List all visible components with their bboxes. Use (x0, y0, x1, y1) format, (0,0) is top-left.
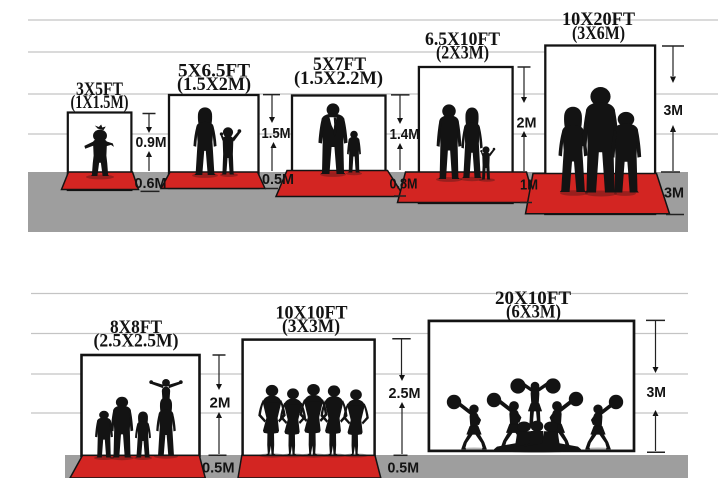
svg-text:(3X3M): (3X3M) (282, 316, 340, 337)
svg-text:3M: 3M (664, 103, 684, 119)
svg-text:(2.5X2.5M): (2.5X2.5M) (94, 331, 179, 352)
svg-text:(2X3M): (2X3M) (436, 43, 489, 64)
svg-text:1.5M: 1.5M (262, 126, 291, 142)
svg-text:(1.5X2.2M): (1.5X2.2M) (294, 68, 383, 89)
svg-text:2M: 2M (517, 116, 537, 132)
svg-text:(1.5X2M): (1.5X2M) (177, 74, 251, 95)
svg-text:0.8M: 0.8M (390, 177, 418, 193)
svg-text:1.4M: 1.4M (390, 127, 420, 143)
svg-text:2M: 2M (210, 396, 231, 412)
svg-text:1M: 1M (520, 178, 538, 194)
svg-text:0.5M: 0.5M (202, 461, 235, 477)
svg-text:3M: 3M (647, 385, 667, 401)
svg-text:2.5M: 2.5M (389, 386, 421, 402)
svg-text:(1X1.5M): (1X1.5M) (71, 92, 129, 113)
svg-text:0.5M: 0.5M (388, 461, 420, 477)
svg-text:0.6M: 0.6M (135, 176, 167, 192)
svg-text:(3X6M): (3X6M) (572, 23, 625, 44)
svg-text:0.9M: 0.9M (136, 135, 167, 151)
svg-text:(6X3M): (6X3M) (506, 302, 561, 323)
svg-text:0.5M: 0.5M (262, 172, 294, 188)
svg-text:3M: 3M (664, 186, 684, 202)
